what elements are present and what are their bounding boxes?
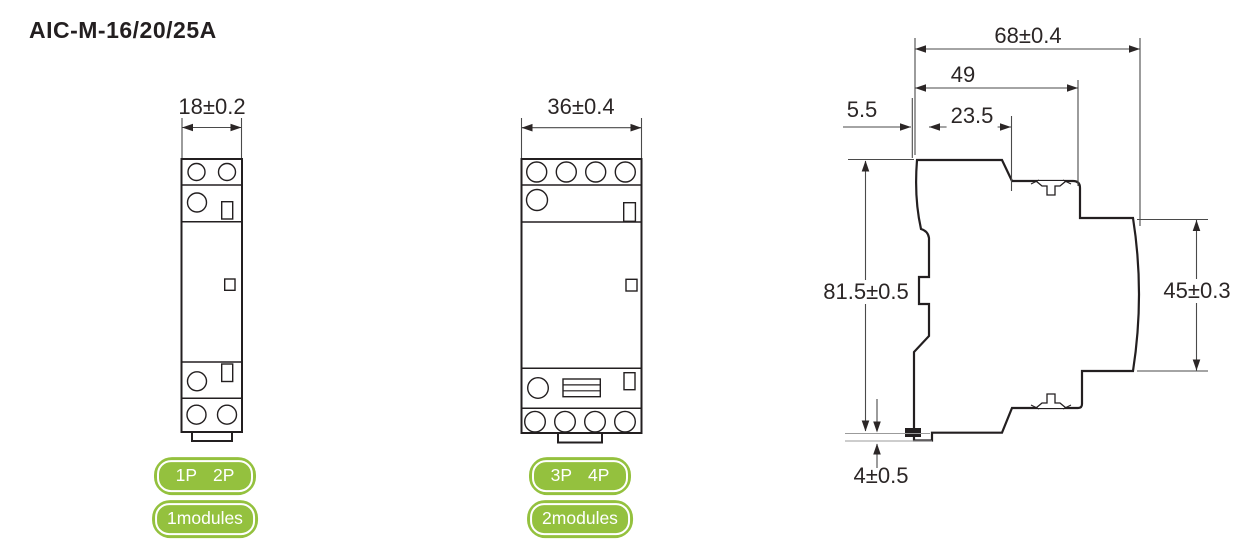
label-window-icon: [563, 379, 600, 397]
modules-badge-2module: 2modules: [527, 500, 633, 538]
terminal-screw-icon: [615, 411, 636, 432]
dim-label-total-depth: 68±0.4: [994, 25, 1061, 47]
product-title: AIC-M-16/20/25A: [29, 17, 217, 44]
modules-count-label: 2modules: [542, 508, 618, 530]
pole-option-label: 3P: [551, 465, 572, 487]
terminal-screw-icon: [556, 162, 576, 182]
indicator-window-icon: [624, 203, 636, 222]
terminal-screw-icon: [528, 378, 549, 399]
clip-release-top-icon: [1036, 181, 1066, 195]
poles-badge-1module: 1P 2P: [154, 457, 256, 495]
terminal-screw-icon: [187, 405, 206, 424]
terminal-screw-icon: [218, 405, 237, 424]
front-view-1module-drawing: [182, 118, 243, 441]
indicator-window-icon: [222, 364, 233, 382]
side-dimension-lines: [843, 38, 1208, 468]
terminal-screw-icon: [525, 411, 546, 432]
terminal-screw-icon: [219, 164, 236, 181]
width-dimension-lines: [522, 118, 642, 158]
dim-label-width-1module: 18±0.2: [178, 96, 245, 118]
side-profile-outline: [914, 160, 1139, 441]
poles-badge-2module: 3P 4P: [529, 457, 631, 495]
front-view-2module-drawing: [522, 118, 642, 443]
dim-label-bottom-clip: 4±0.5: [854, 465, 909, 487]
clip-release-bottom-icon: [1036, 394, 1066, 408]
modules-badge-1module: 1modules: [152, 500, 258, 538]
marker-window-icon: [626, 279, 637, 291]
side-view-drawing: [843, 38, 1208, 468]
din-tab-bottom: [192, 432, 232, 441]
technical-drawing-page: AIC-M-16/20/25A 18±0.2 36±0.4 68±0.4 49 …: [0, 0, 1251, 558]
marker-window-icon: [225, 279, 235, 290]
dim-label-front-lip: 5.5: [847, 99, 878, 121]
pole-option-label: 4P: [588, 465, 609, 487]
terminal-screw-icon: [615, 162, 635, 182]
dim-label-width-2module: 36±0.4: [547, 96, 614, 118]
pole-option-label: 2P: [213, 465, 234, 487]
terminal-screw-icon: [585, 411, 606, 432]
terminal-screw-icon: [527, 162, 547, 182]
indicator-window-icon: [222, 202, 233, 219]
terminal-screw-icon: [188, 193, 207, 212]
terminal-screw-icon: [188, 164, 205, 181]
din-tab-bottom: [558, 433, 602, 443]
dim-label-total-height: 81.5±0.5: [819, 280, 912, 304]
terminal-screw-icon: [555, 411, 576, 432]
modules-count-label: 1modules: [167, 508, 243, 530]
dim-label-body-depth: 49: [951, 64, 975, 86]
dim-label-din-recess: 23.5: [947, 104, 998, 128]
terminal-screw-icon: [586, 162, 606, 182]
pole-option-label: 1P: [176, 465, 197, 487]
terminal-screw-icon: [527, 190, 548, 211]
indicator-window-icon: [624, 373, 635, 390]
terminal-screw-icon: [188, 372, 207, 391]
dim-label-din-height: 45±0.3: [1159, 279, 1234, 303]
din-clip-foot: [905, 428, 921, 437]
width-dimension-lines: [182, 118, 242, 158]
